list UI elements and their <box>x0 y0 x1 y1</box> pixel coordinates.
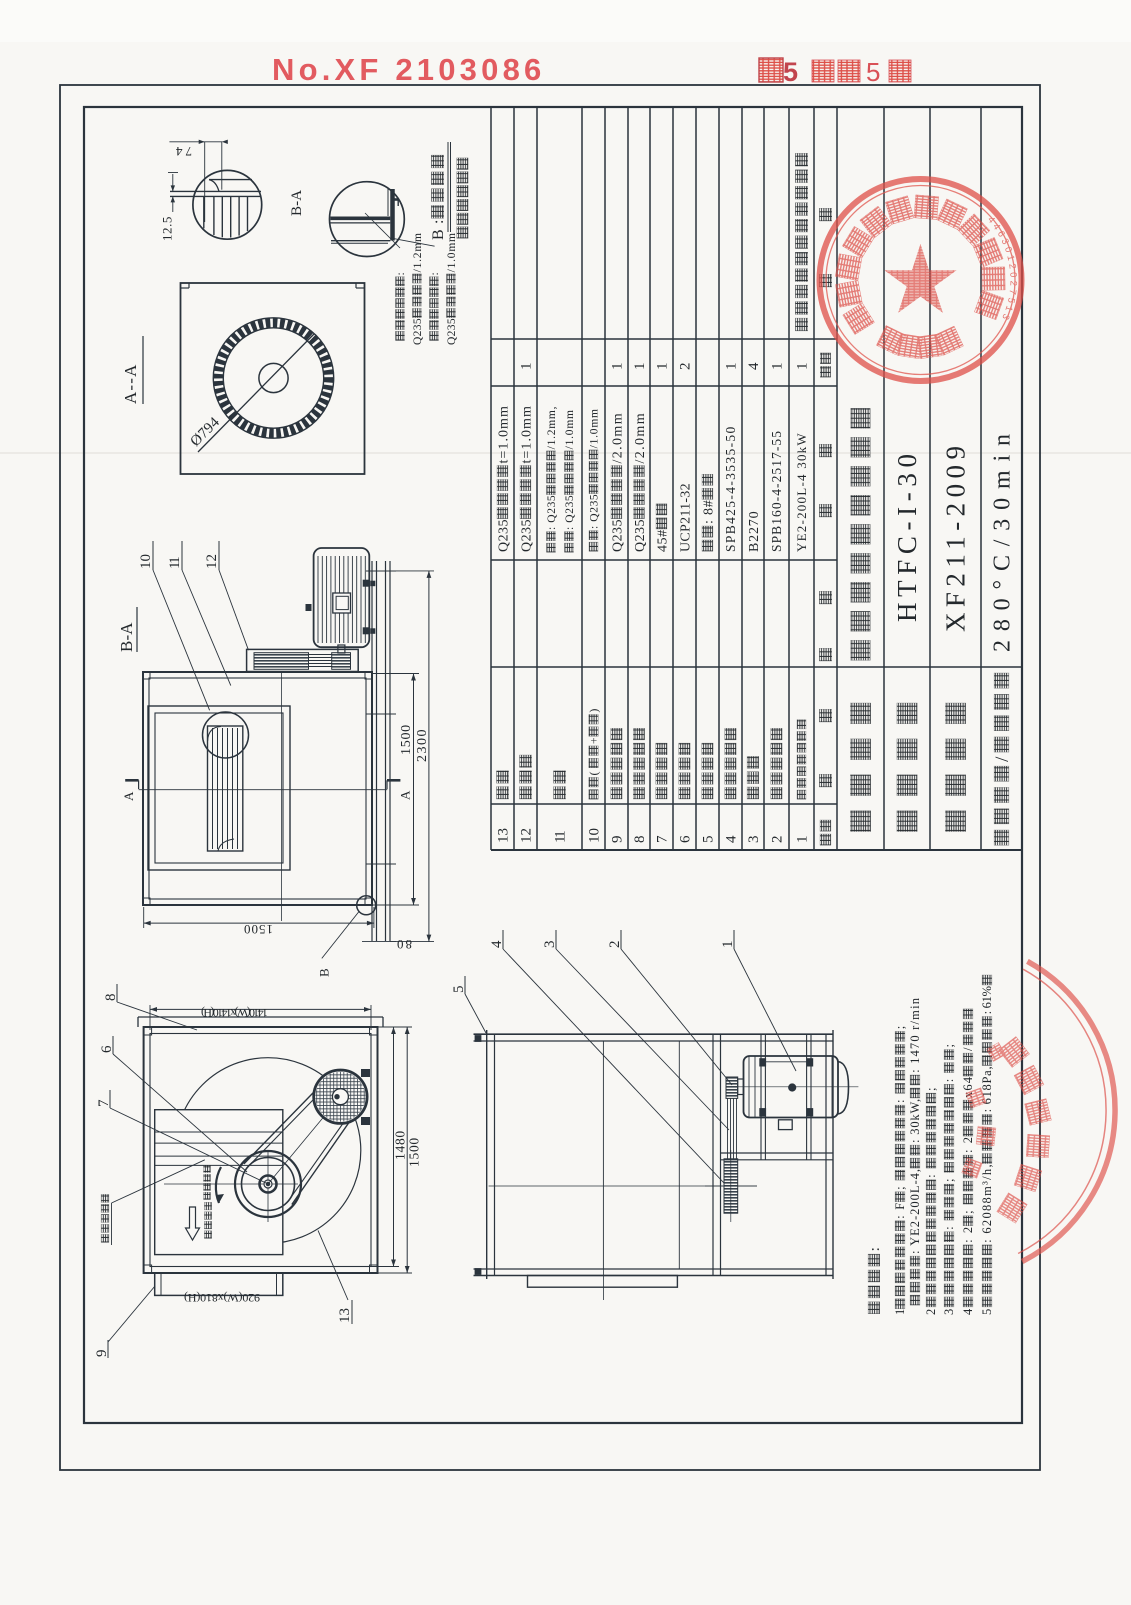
svg-text:B:: B: <box>430 220 447 241</box>
svg-text:2: 2 <box>770 836 786 844</box>
svg-text::: : <box>924 1174 938 1177</box>
svg-text:: 618Pa,: : 618Pa, <box>980 1066 994 1112</box>
svg-text:B2270: B2270 <box>747 511 762 552</box>
svg-text:12: 12 <box>204 554 220 569</box>
svg-text:13: 13 <box>496 828 512 843</box>
svg-text:Q235: Q235 <box>519 520 534 553</box>
svg-text:45#: 45# <box>655 530 670 552</box>
svg-text:: 30kW,: : 30kW, <box>908 1099 922 1143</box>
svg-text:Q235: Q235 <box>412 318 424 345</box>
svg-text::: : <box>429 272 441 275</box>
svg-text:A: A <box>121 791 136 801</box>
svg-text:5: 5 <box>980 1309 994 1315</box>
svg-text:HTFC-I-30: HTFC-I-30 <box>892 454 922 622</box>
svg-text:No.XF 2103086: No.XF 2103086 <box>272 52 545 87</box>
svg-text:(: ( <box>587 772 601 776</box>
svg-text:1: 1 <box>770 363 786 371</box>
svg-text:): ) <box>587 709 601 713</box>
svg-text:/1.2mm,: /1.2mm, <box>546 406 558 449</box>
svg-text::: : <box>942 1079 956 1082</box>
svg-text:;: ; <box>893 1186 907 1189</box>
svg-text:B: B <box>316 968 331 977</box>
svg-text:1500: 1500 <box>407 1138 422 1167</box>
svg-text:: 1470 r/min: : 1470 r/min <box>908 997 922 1073</box>
svg-text:2: 2 <box>678 363 694 371</box>
svg-text:1: 1 <box>655 363 671 371</box>
svg-text:1: 1 <box>610 363 626 371</box>
svg-text:Q235: Q235 <box>446 318 458 345</box>
svg-text:/: / <box>961 1047 975 1051</box>
svg-text:/2.0mm: /2.0mm <box>633 413 648 463</box>
svg-text:: 61%: : 61% <box>980 986 994 1015</box>
svg-text:3: 3 <box>942 1309 956 1315</box>
svg-text:2: 2 <box>924 1309 938 1315</box>
svg-text:1: 1 <box>795 363 811 371</box>
svg-text:SPB425-4-3535-50: SPB425-4-3535-50 <box>723 426 738 552</box>
svg-text:/1.0mm: /1.0mm <box>446 233 458 272</box>
svg-text:1410(W)x1410(H): 1410(W)x1410(H) <box>201 1006 268 1020</box>
svg-text:Q235: Q235 <box>610 520 625 553</box>
svg-text::: : <box>893 1100 907 1103</box>
svg-text:+: + <box>587 737 601 744</box>
svg-text:: 8#: : 8# <box>701 500 716 524</box>
svg-text:920(W)x810(H): 920(W)x810(H) <box>184 1291 260 1305</box>
svg-text:7: 7 <box>655 835 671 843</box>
svg-text:4: 4 <box>724 835 740 843</box>
svg-text:;: ; <box>924 1088 938 1091</box>
svg-text:t=1.0mm: t=1.0mm <box>496 406 511 464</box>
svg-text:4: 4 <box>961 1308 975 1315</box>
svg-text:1480: 1480 <box>393 1131 408 1160</box>
svg-text:UCP211-32: UCP211-32 <box>678 483 693 552</box>
svg-text:1: 1 <box>519 363 535 371</box>
svg-text:1: 1 <box>724 363 740 371</box>
svg-text:9: 9 <box>610 836 626 844</box>
svg-text:;: ; <box>893 1026 907 1029</box>
svg-text:Q235: Q235 <box>633 520 648 553</box>
svg-text:5: 5 <box>866 57 880 87</box>
svg-text:: Q235: : Q235 <box>588 494 600 529</box>
svg-text:3: 3 <box>746 836 762 844</box>
svg-text:/1.0mm: /1.0mm <box>564 410 576 449</box>
svg-text:: YE2-200L-4,: : YE2-200L-4, <box>908 1169 922 1254</box>
svg-text:4: 4 <box>746 362 762 370</box>
svg-text:8: 8 <box>632 836 648 844</box>
svg-text:XF211-2009: XF211-2009 <box>941 446 971 632</box>
svg-text:: 2: : 2 <box>961 1227 975 1243</box>
svg-text:1: 1 <box>893 1309 907 1315</box>
svg-text:11: 11 <box>167 556 183 569</box>
svg-text:;: ; <box>942 1044 956 1047</box>
svg-text:12: 12 <box>519 828 535 843</box>
svg-text:/: / <box>992 756 1013 762</box>
svg-text:SPB160-4-2517-55: SPB160-4-2517-55 <box>769 431 784 552</box>
svg-text:/1.2mm: /1.2mm <box>412 233 424 272</box>
svg-text:10: 10 <box>587 828 603 843</box>
svg-text:YE2-200L-4 30kW: YE2-200L-4 30kW <box>794 433 809 552</box>
svg-text:;: ; <box>961 1210 975 1213</box>
svg-text:11: 11 <box>553 830 569 843</box>
svg-text:;: ; <box>942 1179 956 1182</box>
svg-text:Q235: Q235 <box>496 520 511 553</box>
svg-text:B-A: B-A <box>289 190 305 216</box>
svg-text:: 2: : 2 <box>961 1137 975 1153</box>
svg-text:B-A: B-A <box>117 622 136 652</box>
svg-text:t=1.0mm: t=1.0mm <box>519 406 534 464</box>
svg-text:12.5: 12.5 <box>159 217 174 241</box>
svg-text:/2.0mm: /2.0mm <box>610 413 625 463</box>
svg-text:5: 5 <box>783 57 798 87</box>
svg-text:A: A <box>397 790 412 800</box>
svg-text:1500: 1500 <box>244 922 273 937</box>
svg-text::: : <box>867 1247 883 1251</box>
svg-text:6: 6 <box>678 835 694 843</box>
svg-text:1: 1 <box>632 363 648 371</box>
svg-text::: : <box>395 272 407 275</box>
svg-text:2300: 2300 <box>415 730 430 763</box>
svg-text:A--A: A--A <box>121 364 140 404</box>
svg-text:13: 13 <box>337 1308 353 1323</box>
svg-text:1500: 1500 <box>399 725 414 755</box>
svg-text::: : <box>942 1226 956 1229</box>
svg-text:10: 10 <box>138 554 154 569</box>
svg-text:/1.0mm: /1.0mm <box>588 409 600 448</box>
svg-text:: Q235: : Q235 <box>564 495 576 530</box>
svg-text:: Q235: : Q235 <box>546 495 558 530</box>
svg-text:5: 5 <box>701 836 717 844</box>
svg-text:1: 1 <box>795 836 811 844</box>
